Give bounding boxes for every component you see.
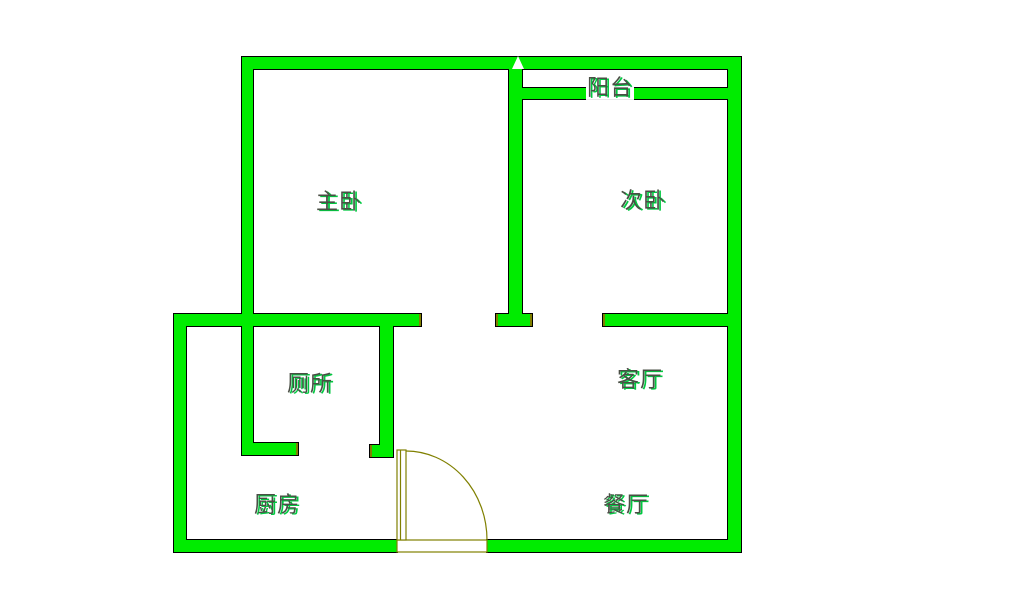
room-label-kitchen: 厨房	[254, 493, 300, 517]
wall-toilet-foot-right	[370, 445, 393, 457]
wall-toilet-foot-left	[242, 443, 298, 455]
floor-plan-canvas: 主卧 次卧 阳台 厕所 客厅 厨房 餐厅	[0, 0, 1019, 611]
wall-central-cap	[496, 314, 532, 326]
room-label-second-bedroom: 次卧	[620, 189, 666, 213]
door-swing-arc	[406, 451, 487, 540]
room-label-living-room: 客厅	[617, 368, 663, 392]
wall-central-vertical	[509, 69, 522, 314]
walls-fill-layer	[174, 57, 741, 552]
wall-right	[728, 57, 741, 552]
room-label-balcony: 阳台	[586, 76, 634, 100]
wall-bottom-left	[174, 540, 397, 552]
wall-bottom-right	[487, 540, 741, 552]
wall-toilet-right	[380, 326, 393, 457]
room-label-dining-room: 餐厅	[603, 493, 649, 517]
floor-plan-drawing	[0, 0, 1019, 611]
wall-left-lower	[174, 314, 186, 552]
entry-door	[397, 450, 487, 552]
door-leaf	[397, 450, 406, 540]
wall-middle-left	[174, 314, 421, 326]
wall-middle-right	[603, 314, 741, 326]
door-threshold	[397, 540, 487, 552]
room-label-toilet: 厕所	[287, 372, 333, 396]
wall-end-caps	[296, 314, 605, 457]
room-label-master-bedroom: 主卧	[316, 190, 362, 214]
wall-top	[242, 57, 741, 69]
walls-outline-layer	[173, 56, 742, 553]
wall-left-upper	[242, 57, 253, 455]
